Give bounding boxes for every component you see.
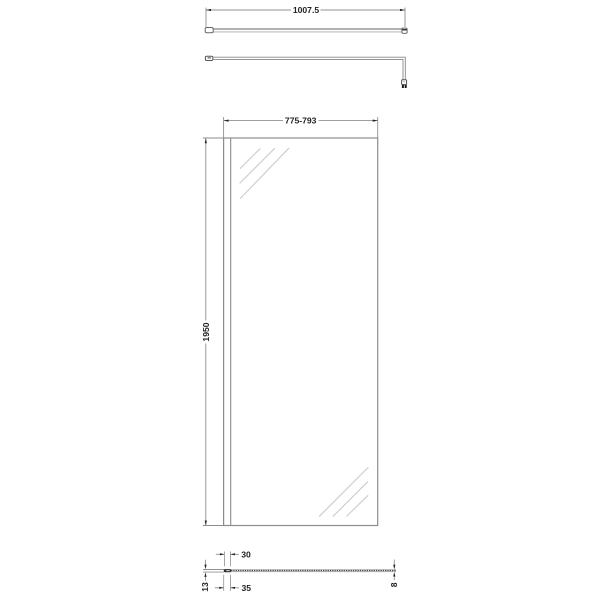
svg-text:8: 8 [389,582,399,587]
svg-text:13: 13 [200,582,210,592]
svg-text:775-793: 775-793 [285,116,317,126]
svg-text:30: 30 [241,549,251,559]
svg-text:1950: 1950 [201,322,211,341]
svg-text:1007.5: 1007.5 [293,5,320,15]
svg-text:35: 35 [242,583,252,593]
